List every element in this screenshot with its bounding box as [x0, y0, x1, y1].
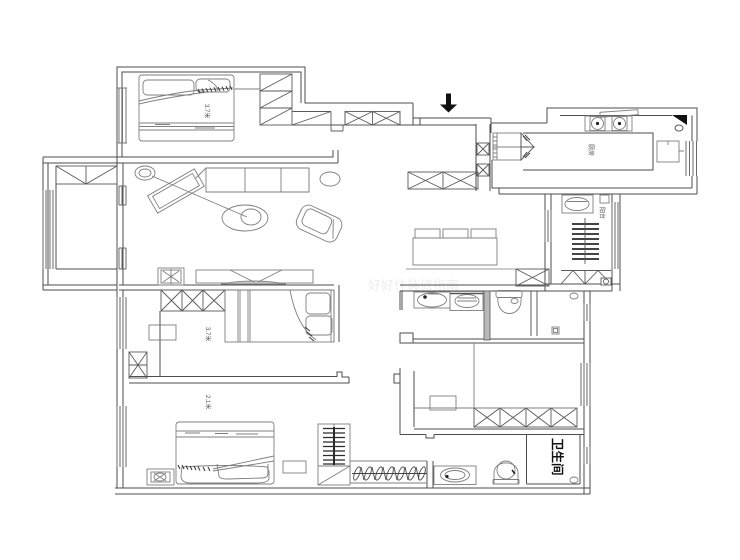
svg-text:阳台: 阳台: [598, 207, 606, 219]
svg-text:卫生间: 卫生间: [550, 438, 565, 476]
svg-text:2.1米: 2.1米: [204, 395, 212, 409]
svg-text:3.7米: 3.7米: [204, 327, 212, 341]
svg-text:3.7米: 3.7米: [203, 104, 211, 118]
svg-text:厨房: 厨房: [587, 144, 595, 156]
